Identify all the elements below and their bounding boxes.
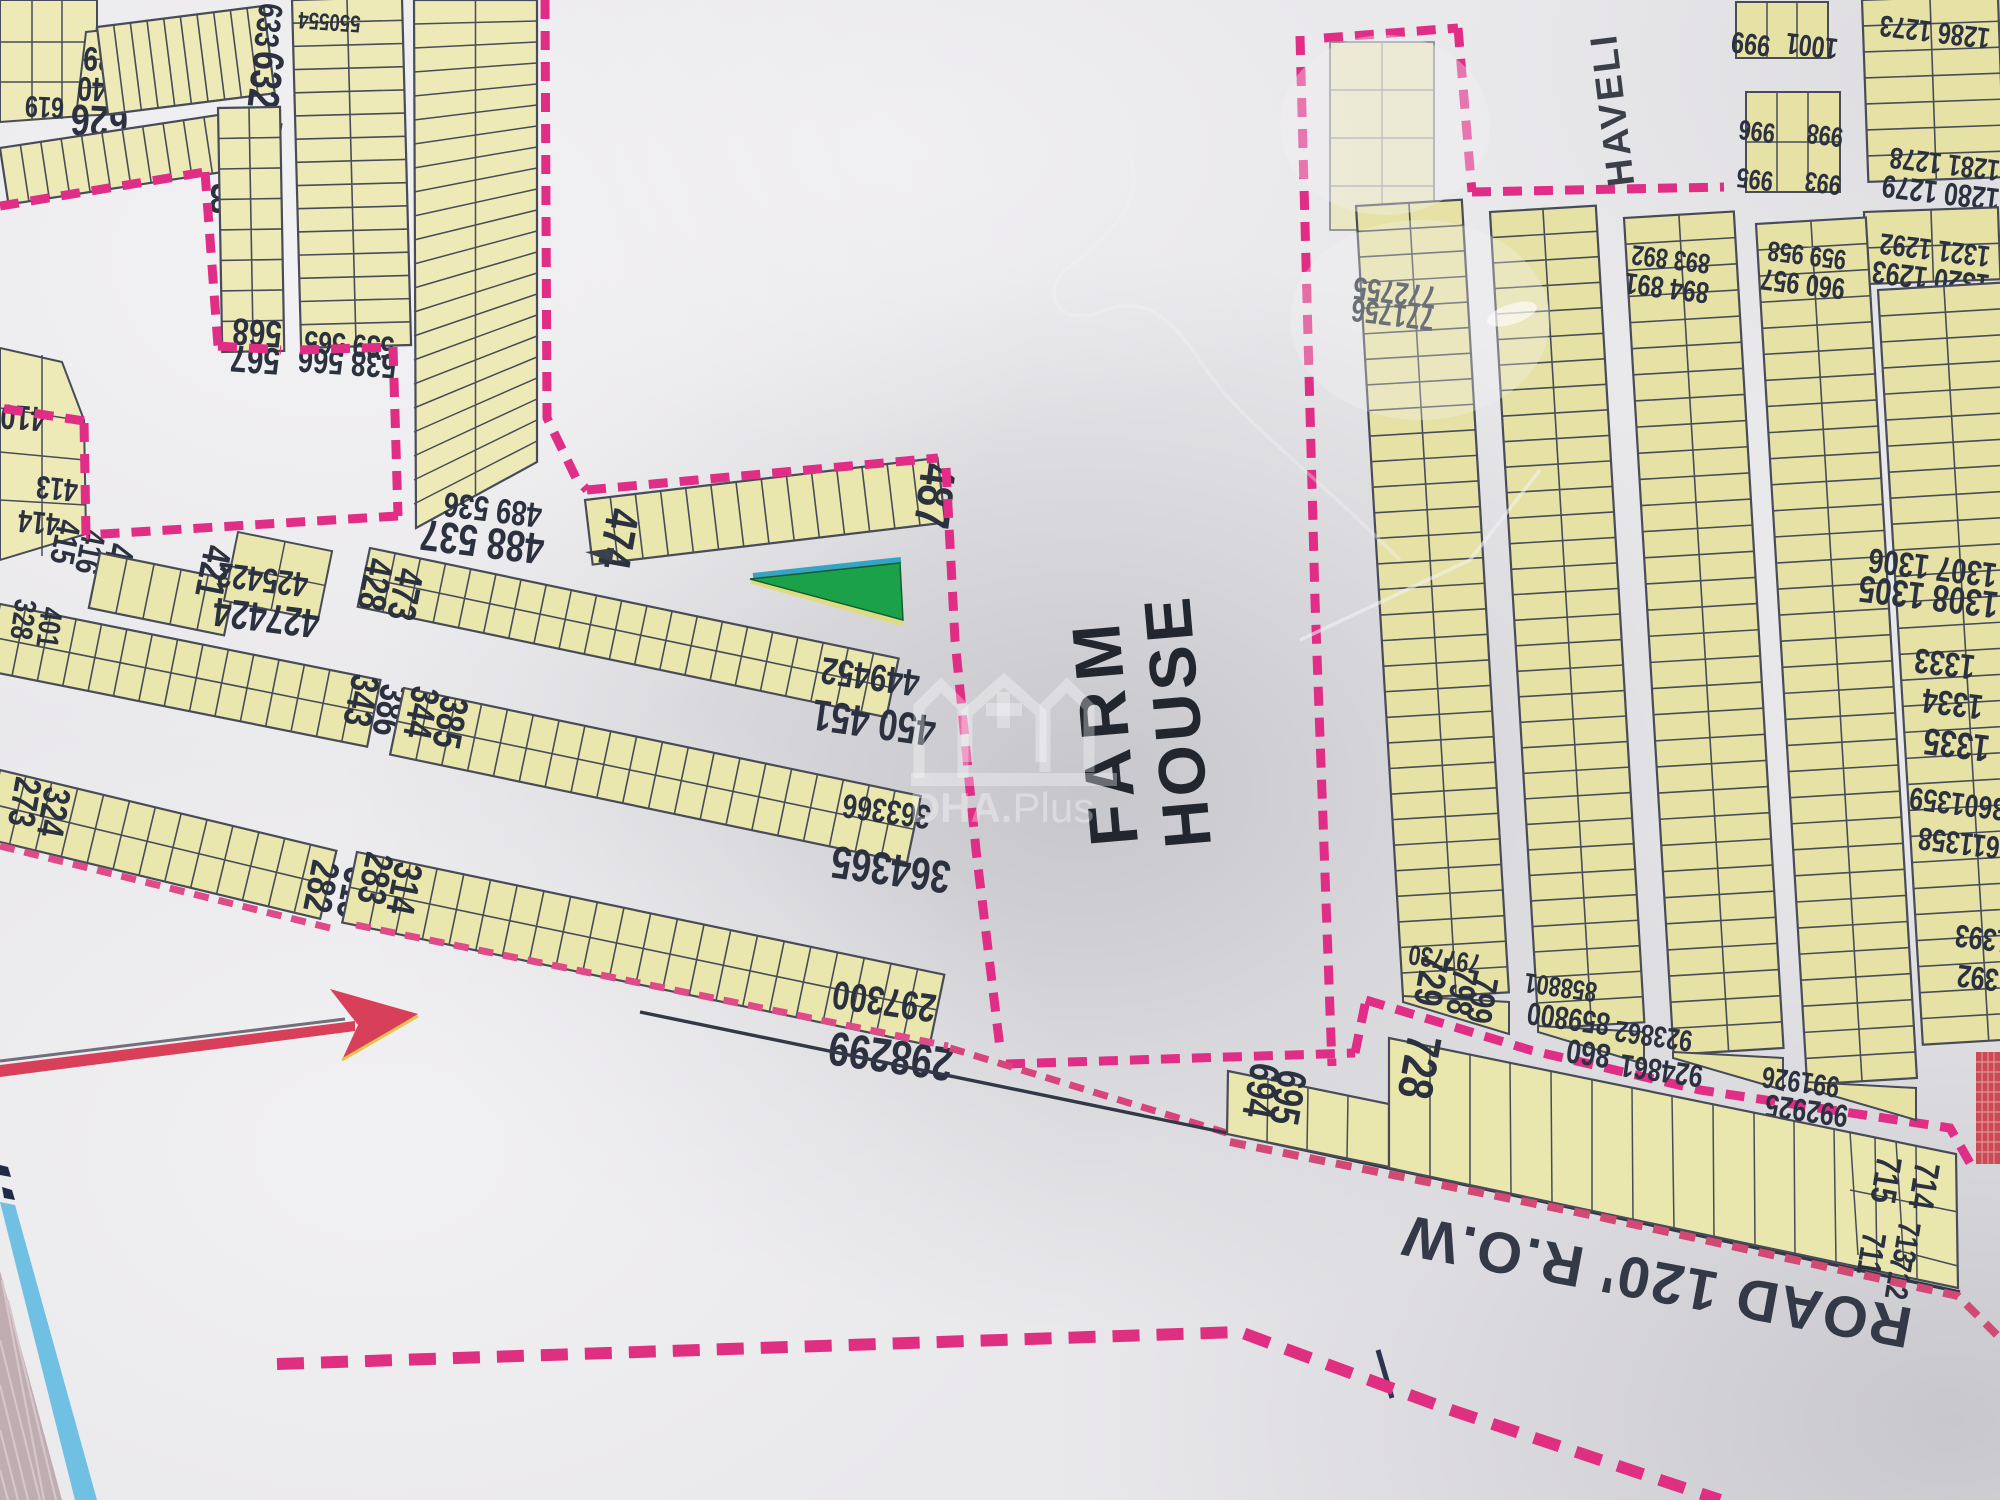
svg-text:474: 474 (588, 505, 649, 573)
svg-text:1335: 1335 (1921, 719, 1992, 769)
svg-text:728: 728 (1386, 1031, 1451, 1103)
svg-text:996: 996 (1737, 113, 1777, 148)
svg-text:1393: 1393 (1953, 917, 2000, 959)
svg-text:1001: 1001 (1784, 26, 1840, 66)
svg-text:401: 401 (30, 605, 70, 650)
svg-text:995: 995 (1735, 161, 1775, 196)
svg-text:695: 695 (1260, 1067, 1316, 1129)
svg-text:632: 632 (238, 48, 294, 111)
svg-text:998: 998 (1805, 117, 1845, 152)
svg-text:487: 487 (903, 460, 967, 532)
svg-text:999: 999 (1729, 25, 1772, 63)
svg-text:550554: 550554 (297, 6, 361, 37)
svg-text:1392: 1392 (1955, 957, 2000, 999)
svg-text:619: 619 (24, 89, 65, 124)
svg-text:1333: 1333 (1912, 641, 1977, 687)
svg-text:714: 714 (1901, 1160, 1948, 1213)
svg-text:633: 633 (247, 1, 290, 50)
svg-text:413: 413 (34, 468, 79, 508)
svg-text:860: 860 (1564, 1031, 1613, 1075)
svg-text:324: 324 (28, 784, 78, 840)
svg-text:DHA.Plus: DHA.Plus (910, 784, 1094, 831)
svg-text:993: 993 (1803, 165, 1843, 200)
svg-text:799: 799 (1458, 974, 1506, 1027)
